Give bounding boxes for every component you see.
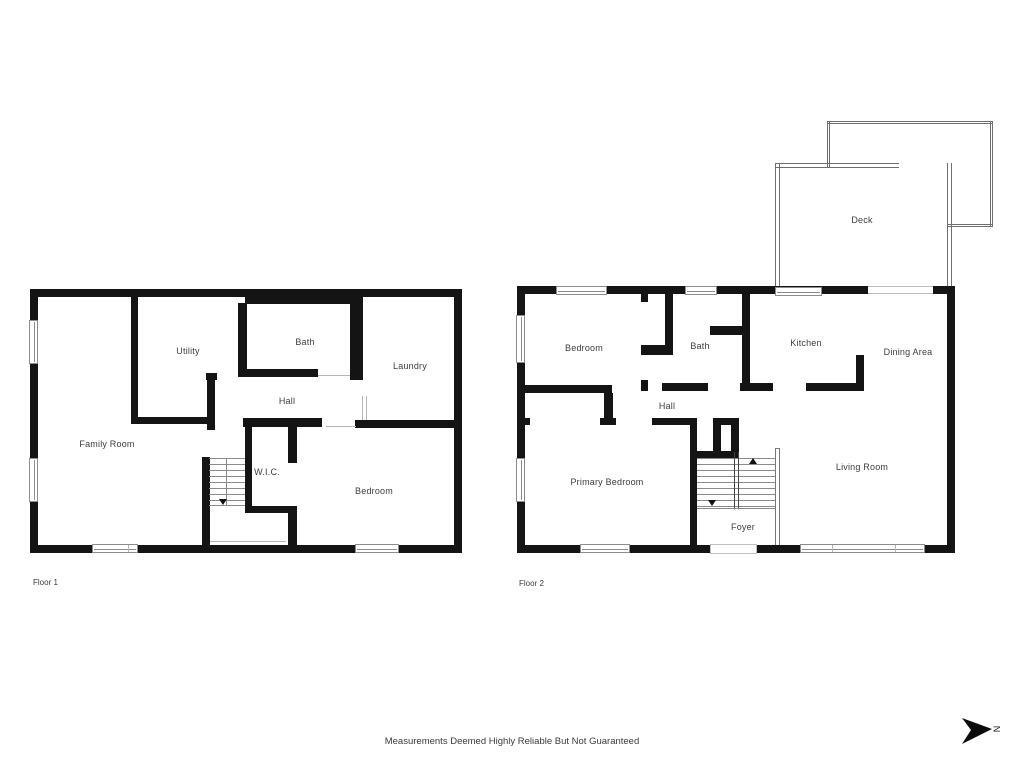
wall-segment (738, 452, 739, 508)
room-label-laundry: Laundry (393, 361, 427, 371)
disclaimer-text: Measurements Deemed Highly Reliable But … (0, 736, 1024, 747)
wall-segment (641, 345, 673, 355)
room-label-utility: Utility (176, 346, 199, 356)
wall-segment (350, 297, 363, 380)
window (29, 458, 38, 502)
stairs-down-arrow (219, 499, 227, 505)
wall-segment (243, 369, 318, 377)
room-label-bedroom-f1: Bedroom (355, 486, 393, 496)
room-label-kitchen: Kitchen (790, 338, 821, 348)
wall-segment (366, 396, 367, 420)
deck-railing (990, 121, 993, 227)
deck-railing (947, 224, 993, 227)
wall-segment (362, 396, 363, 420)
wall-segment (517, 418, 530, 425)
wall-segment (832, 545, 833, 552)
wall-segment (245, 418, 252, 513)
window (355, 544, 399, 553)
wall-segment (355, 420, 462, 428)
floor2-caption: Floor 2 (519, 579, 544, 588)
wall-segment (209, 505, 245, 506)
window (556, 286, 607, 295)
wall-segment (690, 418, 697, 553)
room-label-bath-f1: Bath (295, 337, 314, 347)
wall-segment (895, 545, 896, 552)
wall-segment (517, 385, 612, 393)
window (516, 458, 525, 502)
floorplan-canvas: Family Room Utility Bath Laundry Hall W.… (0, 0, 1024, 768)
wall-segment (641, 294, 648, 302)
room-label-family-room: Family Room (79, 439, 134, 449)
deck-door-opening (868, 286, 933, 294)
room-label-foyer: Foyer (731, 522, 755, 532)
wall-segment (245, 297, 362, 304)
wall-segment (326, 426, 356, 427)
stairs-up-arrow (749, 458, 757, 464)
stair-treads (209, 458, 245, 506)
north-label: N (991, 726, 1001, 733)
wall-segment (734, 452, 735, 508)
window (800, 544, 925, 553)
room-label-primary-bedroom: Primary Bedroom (570, 477, 643, 487)
room-label-hall-f1: Hall (279, 396, 295, 406)
window (516, 315, 525, 363)
wall-segment (775, 448, 776, 545)
wall-segment (604, 393, 613, 419)
wall-segment (207, 374, 215, 430)
deck-railing (775, 163, 899, 168)
wall-segment (779, 448, 780, 545)
wall-segment (947, 286, 955, 553)
wall-segment (131, 417, 209, 424)
wall-segment (775, 448, 780, 449)
wall-segment (128, 545, 129, 552)
wall-segment (210, 541, 286, 542)
wall-segment (742, 294, 750, 391)
wall-segment (662, 383, 708, 391)
room-label-bedroom-f2: Bedroom (565, 343, 603, 353)
window (580, 544, 630, 553)
wall-segment (318, 375, 350, 376)
deck-railing (827, 121, 830, 168)
room-label-living-room: Living Room (836, 462, 888, 472)
wall-segment (30, 289, 462, 297)
room-label-bath-f2: Bath (690, 341, 709, 351)
wall-segment (697, 451, 739, 458)
wall-segment (288, 506, 297, 545)
wall-segment (131, 297, 138, 419)
window (685, 286, 717, 295)
deck-railing (775, 163, 780, 289)
room-label-dining-area: Dining Area (884, 347, 933, 357)
window (29, 320, 38, 364)
wall-segment (641, 380, 648, 391)
room-label-deck: Deck (851, 215, 872, 225)
front-door-opening (710, 544, 757, 554)
wall-segment (238, 303, 247, 377)
wall-segment (710, 326, 742, 335)
wall-segment (856, 355, 864, 391)
window (92, 544, 138, 553)
window (775, 287, 822, 296)
deck-railing (827, 121, 993, 124)
room-label-wic: W.I.C. (254, 467, 280, 477)
wall-segment (288, 418, 297, 463)
wall-segment (600, 418, 616, 425)
floor1-caption: Floor 1 (33, 578, 58, 587)
wall-segment (740, 383, 773, 391)
stairs-down-arrow (708, 500, 716, 506)
wall-segment (697, 508, 775, 509)
room-label-hall-f2: Hall (659, 401, 675, 411)
wall-segment (243, 418, 322, 427)
